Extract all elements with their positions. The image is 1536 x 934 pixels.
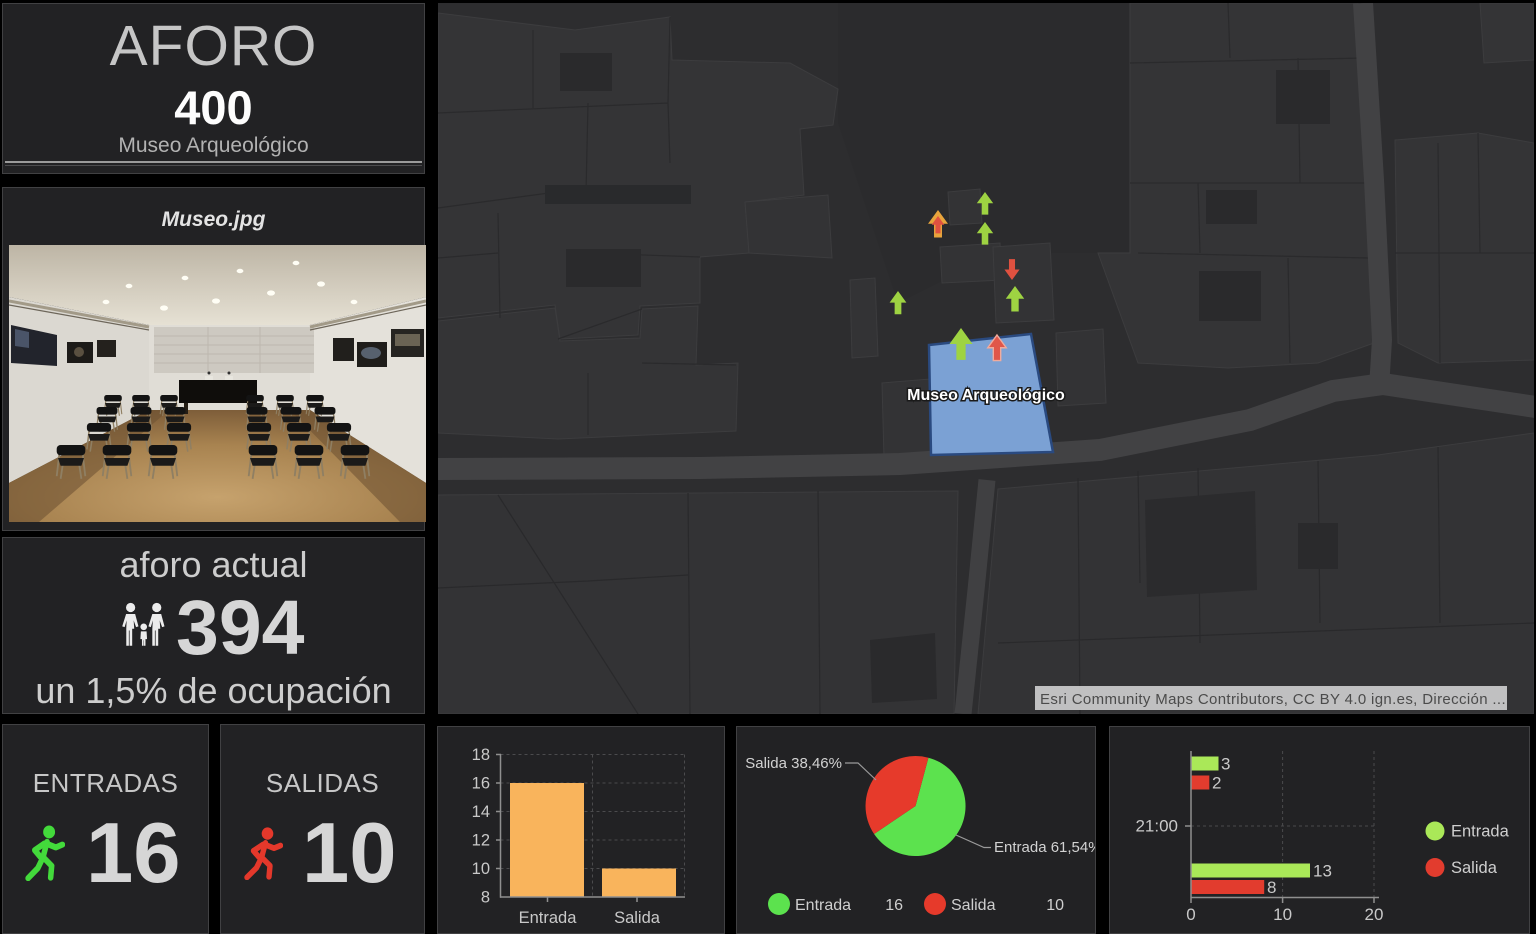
svg-text:18: 18 xyxy=(472,746,490,764)
svg-text:21:00: 21:00 xyxy=(1135,817,1178,836)
svg-text:Salida 38,46%: Salida 38,46% xyxy=(745,755,842,772)
svg-text:10: 10 xyxy=(1046,897,1064,914)
svg-text:16: 16 xyxy=(472,775,490,793)
svg-text:0: 0 xyxy=(1186,905,1195,924)
svg-text:Entrada: Entrada xyxy=(795,897,851,914)
svg-text:10: 10 xyxy=(1273,905,1292,924)
svg-text:8: 8 xyxy=(1267,878,1276,897)
svg-text:20: 20 xyxy=(1365,905,1384,924)
svg-text:Salida: Salida xyxy=(614,909,661,927)
svg-text:Esri Community Maps Contributo: Esri Community Maps Contributors, CC BY … xyxy=(1040,691,1506,708)
svg-text:Museo Arqueológico: Museo Arqueológico xyxy=(907,387,1065,404)
svg-text:Entrada: Entrada xyxy=(1451,823,1510,841)
svg-text:8: 8 xyxy=(481,889,490,907)
svg-text:Entrada: Entrada xyxy=(519,909,578,927)
svg-text:Entrada 61,54%: Entrada 61,54% xyxy=(994,839,1095,856)
svg-text:10: 10 xyxy=(472,860,490,878)
svg-text:14: 14 xyxy=(472,803,490,821)
svg-text:Salida: Salida xyxy=(1451,859,1498,877)
svg-text:13: 13 xyxy=(1313,862,1332,881)
svg-text:12: 12 xyxy=(472,832,490,850)
svg-text:Salida: Salida xyxy=(951,897,996,914)
svg-text:3: 3 xyxy=(1221,755,1230,774)
svg-text:2: 2 xyxy=(1212,774,1221,793)
svg-text:16: 16 xyxy=(885,897,903,914)
